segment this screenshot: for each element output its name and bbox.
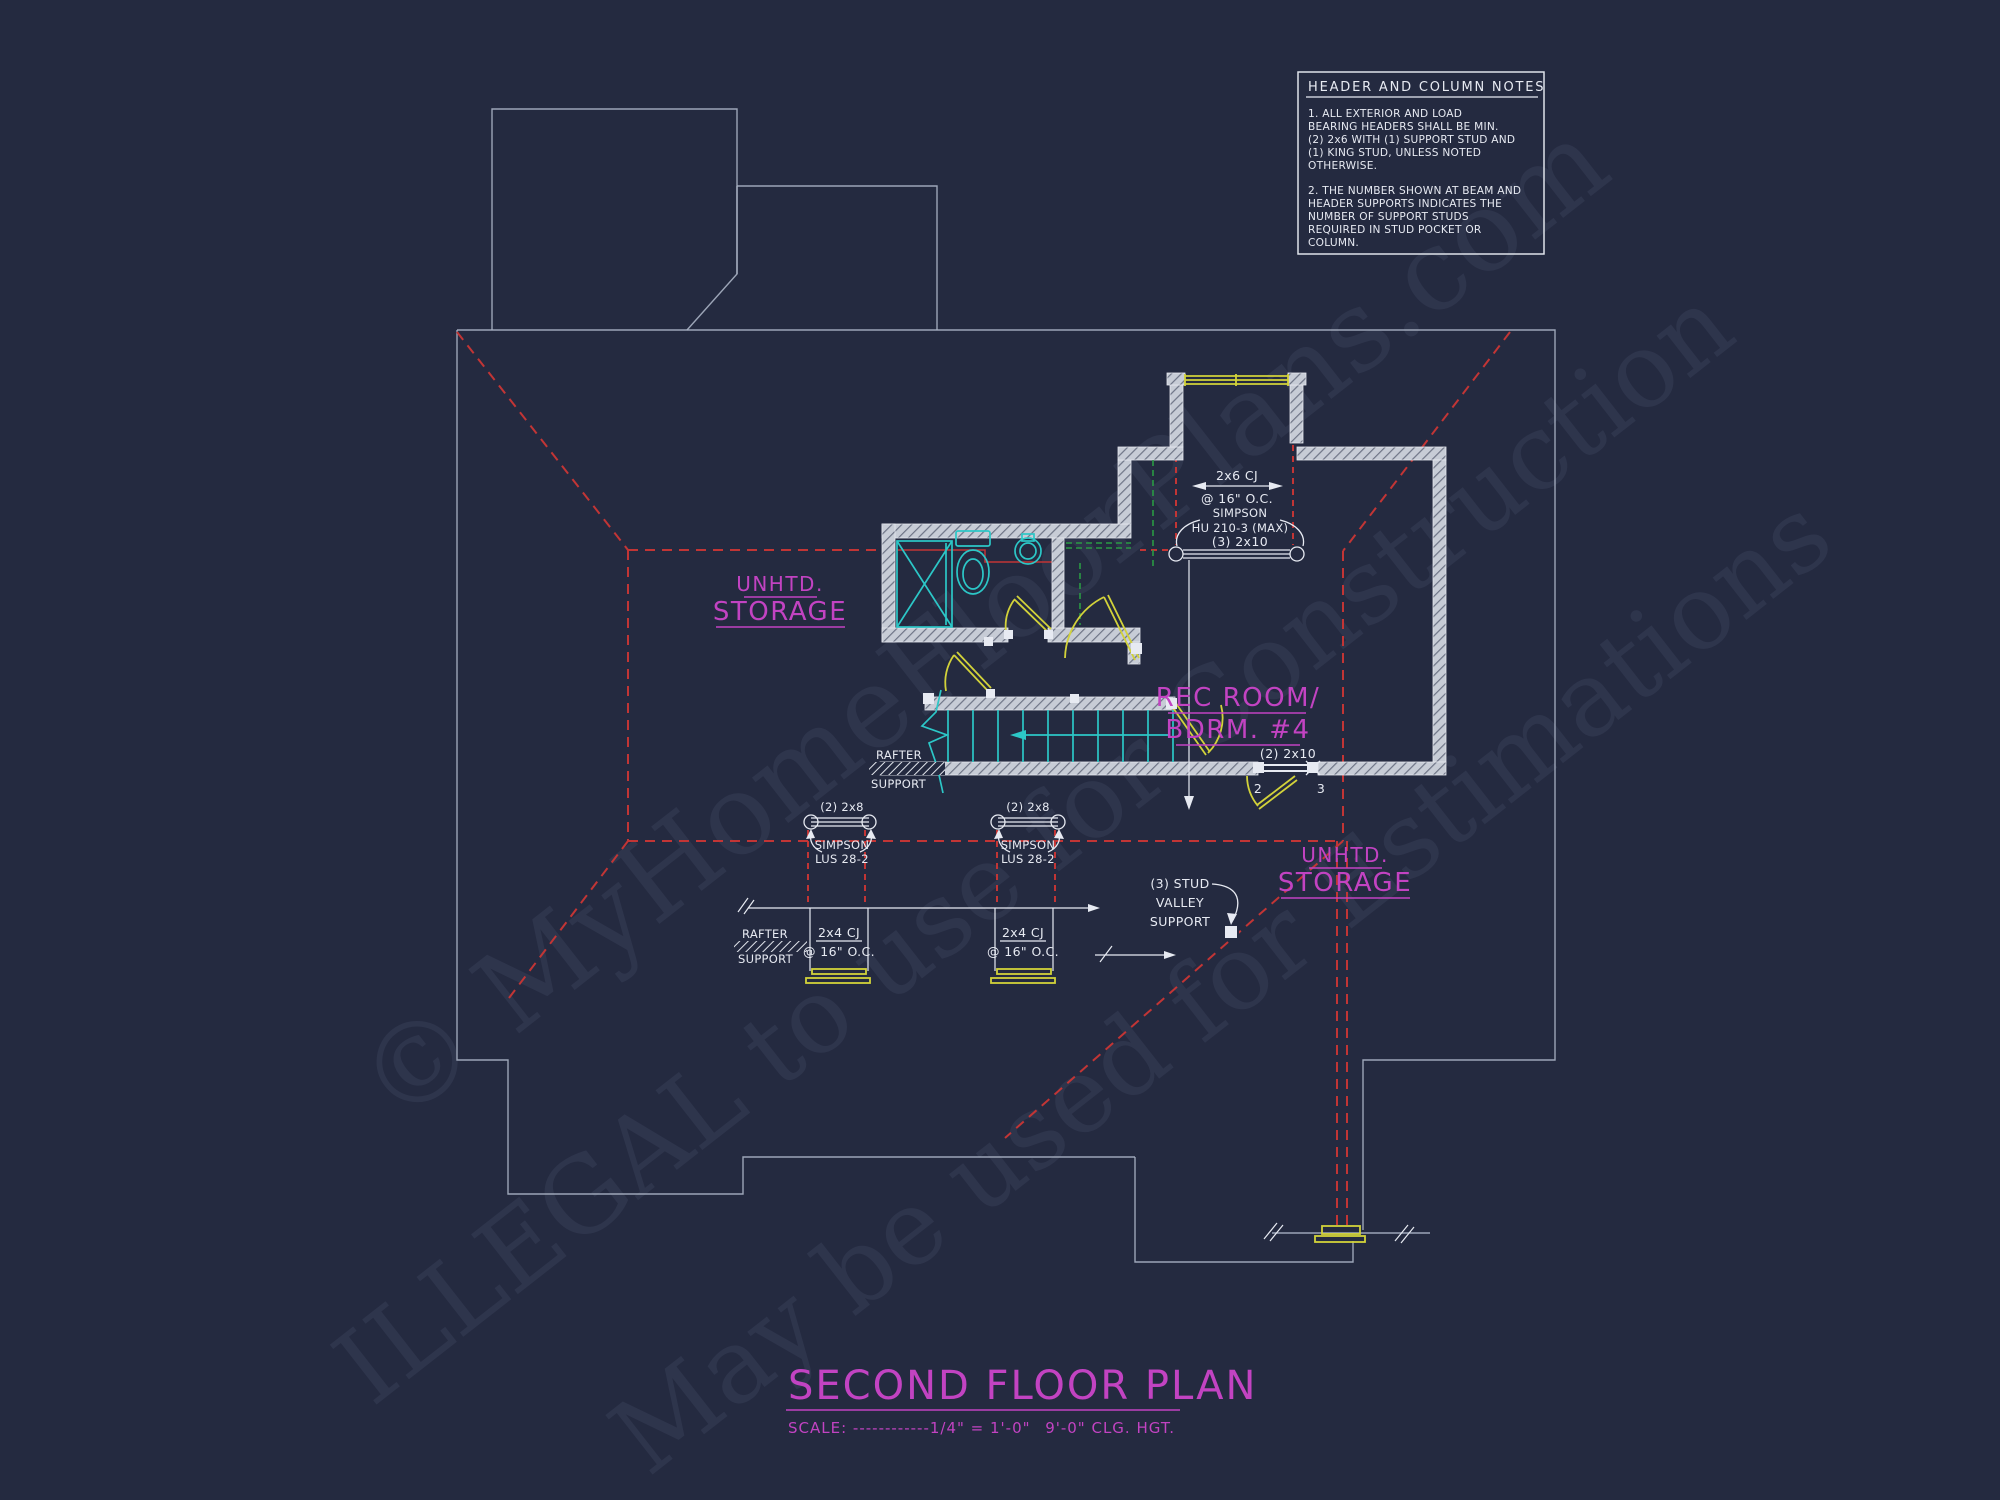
plan-title: SECOND FLOOR PLAN — [788, 1363, 1257, 1409]
rafter-line-break — [738, 898, 754, 914]
wall-recroom-top — [1297, 447, 1446, 460]
label-stud-count-3: 3 — [1317, 781, 1325, 796]
label-cj-lower-right-2: @ 16" O.C. — [987, 944, 1059, 959]
note2-line1: 2. THE NUMBER SHOWN AT BEAM AND — [1308, 185, 1521, 197]
label-cj-lower-left-2: @ 16" O.C. — [803, 944, 875, 959]
label-valley-2: VALLEY — [1156, 895, 1204, 910]
note1-line5: OTHERWISE. — [1308, 160, 1377, 172]
note1-line4: (1) KING STUD, UNLESS NOTED — [1308, 147, 1481, 159]
rafter-line-arrow — [1088, 904, 1100, 912]
wall-dormer-window-right — [1288, 373, 1306, 385]
plan-scale: SCALE: ------------1/4" = 1'-0" — [788, 1419, 1031, 1437]
label-hanger-right-1: SIMPSON — [1001, 838, 1056, 852]
window-dormer-lower-right — [991, 969, 1055, 983]
wall-dormer-left-horizontal — [1118, 447, 1183, 460]
label-beam-2x8-right: (2) 2x8 — [1006, 800, 1049, 814]
title-block: SECOND FLOOR PLAN SCALE: ------------1/4… — [786, 1363, 1257, 1437]
window-sill — [1315, 1236, 1365, 1242]
label-rafter-lower-2: SUPPORT — [738, 952, 794, 966]
label-stud-count-2: 2 — [1254, 781, 1262, 796]
wall-dormer-window-left — [1167, 373, 1185, 385]
wall-recroom-right — [1433, 460, 1446, 762]
note1-line2: BEARING HEADERS SHALL BE MIN. — [1308, 121, 1499, 133]
floor-plan-drawing: © MyHomeFloorPlans.com ILLEGAL to use fo… — [0, 0, 2000, 1500]
wall-bath-top — [882, 524, 1131, 538]
valley-top-left — [457, 332, 628, 550]
wall-dormer-left-cheek — [1170, 385, 1183, 447]
wall-dormer-right-cheek — [1290, 385, 1303, 443]
note1-line3: (2) 2x6 WITH (1) SUPPORT STUD AND — [1308, 134, 1515, 146]
window-dormer-top — [1185, 374, 1288, 386]
label-beam-2x8-left: (2) 2x8 — [820, 800, 863, 814]
window-bottom-wall — [1315, 1226, 1365, 1242]
rafter-support-bar-stairs — [869, 762, 945, 775]
label-cj-lower-left-1: 2x4 CJ — [818, 925, 860, 940]
label-rafter-lower-1: RAFTER — [742, 927, 788, 941]
label-simpson-top-3: (3) 2x10 — [1212, 534, 1268, 549]
label-simpson-top-2: HU 210-3 (MAX) — [1192, 521, 1289, 535]
watermark: © MyHomeFloorPlans.com ILLEGAL to use fo… — [312, 96, 1853, 1498]
stair-direction-arrow — [1010, 730, 1026, 740]
plan-ceiling-height: 9'-0" CLG. HGT. — [1045, 1419, 1175, 1437]
outline-upper-right-rect — [737, 186, 937, 330]
label-cj-top-2: @ 16" O.C. — [1201, 491, 1273, 506]
beam-2-2x10 — [1253, 761, 1320, 775]
label-hanger-right-2: LUS 28-2 — [1001, 852, 1055, 866]
wall-stair-top — [925, 697, 1175, 710]
wall-dormer-left-vertical — [1118, 460, 1131, 524]
note2-line3: NUMBER OF SUPPORT STUDS — [1308, 211, 1469, 223]
note2-line4: REQUIRED IN STUD POCKET OR — [1308, 224, 1482, 236]
label-valley-3: SUPPORT — [1150, 914, 1210, 929]
label-rec-room-2: BDRM. #4 — [1165, 715, 1310, 745]
wall-recroom-bottom-right — [1318, 762, 1446, 775]
outline-upper-left-rect — [492, 109, 737, 330]
label-hanger-left-2: LUS 28-2 — [815, 852, 869, 866]
label-valley-1: (3) STUD — [1150, 876, 1209, 891]
label-cj-top-1: 2x6 CJ — [1216, 468, 1258, 483]
cad-canvas: © MyHomeFloorPlans.com ILLEGAL to use fo… — [0, 0, 2000, 1500]
notes-title: HEADER AND COLUMN NOTES — [1308, 80, 1545, 95]
label-hanger-left-1: SIMPSON — [815, 838, 870, 852]
outline-lower-porch — [1135, 1157, 1353, 1262]
note2-line5: COLUMN. — [1308, 237, 1359, 249]
wall-bath-left — [882, 524, 895, 642]
label-storage-right-2: STORAGE — [1278, 868, 1412, 898]
label-rafter-stairs-1: RAFTER — [876, 748, 922, 762]
label-beam-2x10: (2) 2x10 — [1260, 746, 1316, 761]
label-rec-room-1: REC ROOM/ — [1156, 683, 1321, 713]
window-sill — [991, 978, 1055, 983]
note1-line1: 1. ALL EXTERIOR AND LOAD — [1308, 108, 1462, 120]
label-simpson-top-1: SIMPSON — [1213, 506, 1268, 520]
rafter-support-bar-lower — [734, 941, 807, 952]
wall-bath-closet-divider — [1052, 538, 1064, 628]
label-storage-left-1: UNHTD. — [736, 572, 824, 596]
label-rafter-stairs-2: SUPPORT — [871, 777, 927, 791]
window-frame — [997, 969, 1051, 974]
label-storage-left-2: STORAGE — [713, 597, 847, 627]
note2-line2: HEADER SUPPORTS INDICATES THE — [1308, 198, 1502, 210]
label-storage-right-1: UNHTD. — [1301, 843, 1389, 867]
label-cj-lower-right-1: 2x4 CJ — [1002, 925, 1044, 940]
